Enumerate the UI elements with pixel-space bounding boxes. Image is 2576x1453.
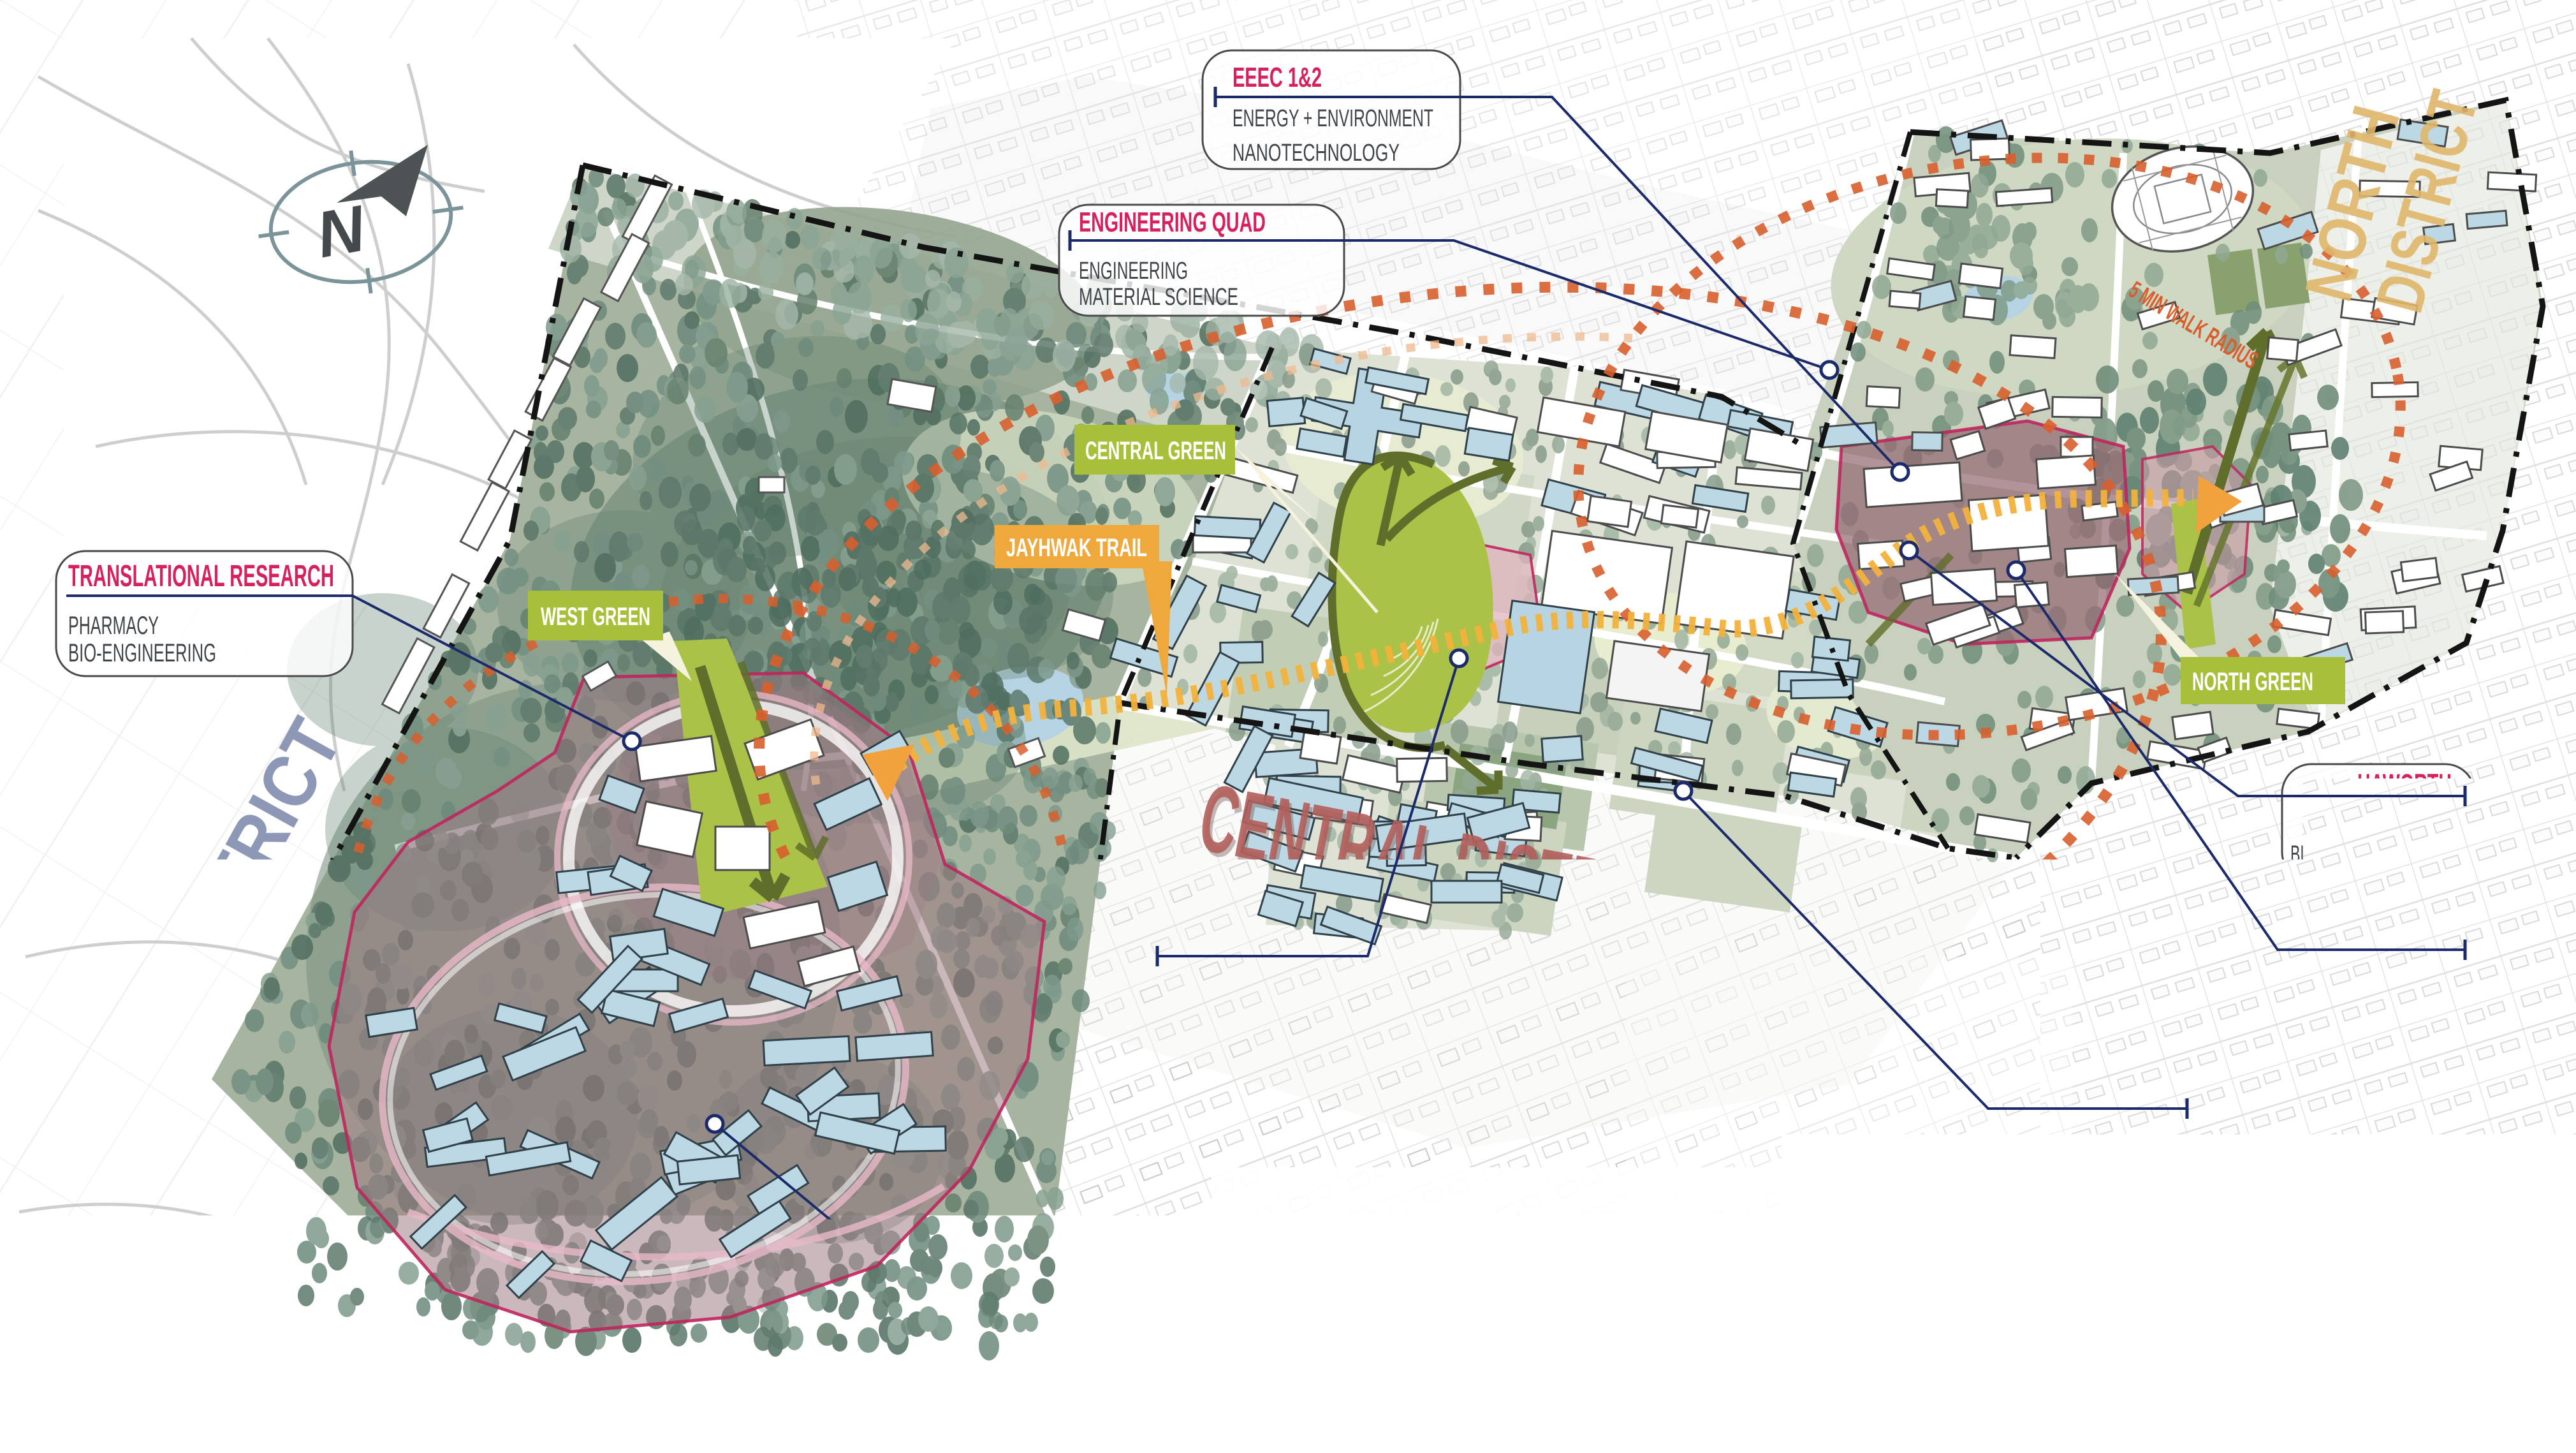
svg-text:Connecting districts through s: Connecting districts through science, in… xyxy=(1343,1230,1802,1260)
svg-text:ENGINEERING: ENGINEERING xyxy=(1079,258,1188,284)
svg-text:CHEMISTRY: CHEMISTRY xyxy=(1167,994,1260,1025)
svg-text:MICROBIOLOGY: MICROBIOLOGY xyxy=(1167,1024,1292,1056)
svg-text:INNOVATION WAY: INNOVATION WAY xyxy=(1454,1190,1623,1220)
svg-text:PHYSICS: PHYSICS xyxy=(2388,812,2452,839)
svg-text:CHEMISTRY: CHEMISTRY xyxy=(2352,987,2451,1014)
svg-text:MATERIAL SCIENCE: MATERIAL SCIENCE xyxy=(1079,284,1238,311)
svg-text:BIOLOGY: BIOLOGY xyxy=(1167,963,1237,994)
svg-text:INDUSTRY: INDUSTRY xyxy=(964,1322,1047,1350)
svg-text:NANOTECHNOLOGY: NANOTECHNOLOGY xyxy=(1233,140,1400,166)
svg-text:LIFE SCIENCES: LIFE SCIENCES xyxy=(1169,922,1310,956)
svg-text:FUTURE GROWTH: FUTURE GROWTH xyxy=(2011,1070,2177,1103)
svg-text:SCIENCES HUB: SCIENCES HUB xyxy=(2313,912,2454,945)
svg-text:CENTRAL GREEN: CENTRAL GREEN xyxy=(1085,437,1226,465)
svg-text:WEST GREEN: WEST GREEN xyxy=(541,603,650,631)
svg-text:RESEARCH PARTNERSHIP: RESEARCH PARTNERSHIP xyxy=(964,1267,1211,1303)
svg-text:KEY CONCEPT: KEY CONCEPT xyxy=(1305,1190,1431,1220)
svg-text:NORTH GREEN: NORTH GREEN xyxy=(2192,668,2313,696)
svg-text:START-UPS: START-UPS xyxy=(964,1362,1055,1390)
svg-text:BEHAVIORAL SCIENCE: BEHAVIORAL SCIENCE xyxy=(2290,841,2454,868)
svg-text:undergraduate programs to Rese: undergraduate programs to Research Campu… xyxy=(1343,1353,1703,1383)
svg-text:Build-out Research Campus to i: Build-out Research Campus to include Tra… xyxy=(1343,1395,1870,1425)
svg-text:TRANSLATIONAL RESEARCH: TRANSLATIONAL RESEARCH xyxy=(68,559,334,593)
svg-text:Strengthen the core with infil: Strengthen the core with infill projects… xyxy=(1345,1271,2119,1301)
svg-text:BIO-ENGINEERING: BIO-ENGINEERING xyxy=(68,639,216,667)
svg-text:EEEC 1&2: EEEC 1&2 xyxy=(1233,62,1322,93)
svg-text::: : xyxy=(1433,1190,1442,1220)
svg-text:ECOLOGY: ECOLOGY xyxy=(1167,1055,1241,1086)
svg-text:MATERIAL SCIENCE: MATERIAL SCIENCE xyxy=(2290,955,2451,982)
svg-text:PHARMACY: PHARMACY xyxy=(68,612,159,640)
svg-text:JAYHWAK TRAIL: JAYHWAK TRAIL xyxy=(1006,534,1147,562)
svg-text:Create multi-use interdiscipli: Create multi-use interdisciplinary Centr… xyxy=(1345,1313,2061,1343)
svg-text:ENERGY + ENVIRONMENT: ENERGY + ENVIRONMENT xyxy=(1233,105,1433,132)
svg-text:ENGINEERING QUAD: ENGINEERING QUAD xyxy=(1079,207,1266,238)
